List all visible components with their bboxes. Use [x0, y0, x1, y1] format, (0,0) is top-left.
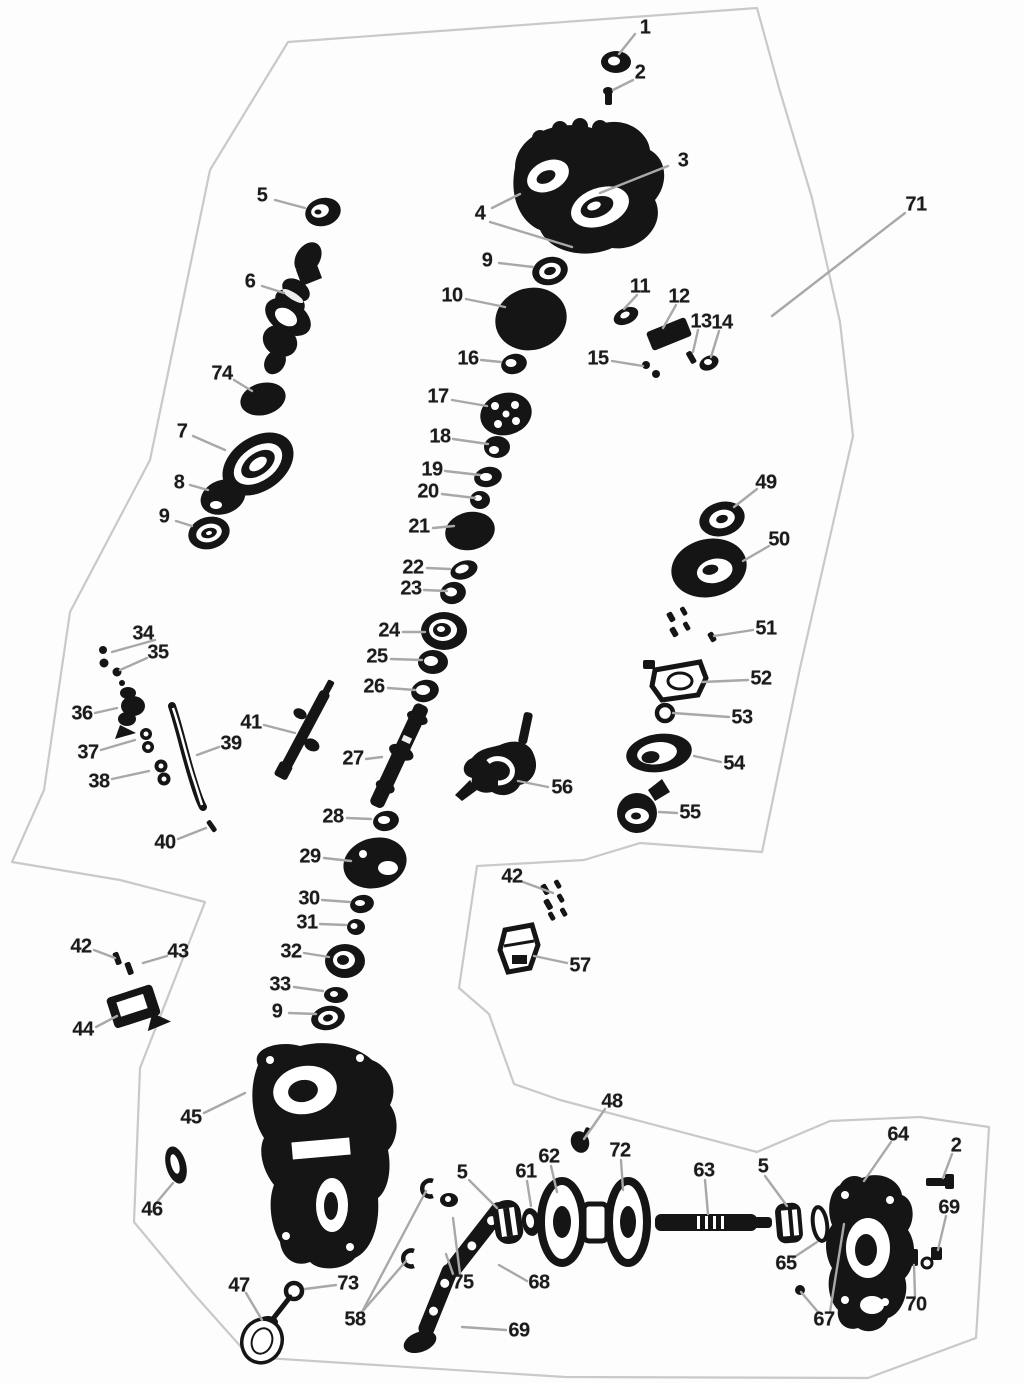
- part-13-graphic: [685, 350, 697, 364]
- callout-label-4-3: 4: [475, 203, 486, 226]
- callout-label-55-75: 55: [679, 802, 700, 825]
- callout-label-23-24: 23: [400, 578, 421, 601]
- callout-label-70-67: 70: [905, 1294, 926, 1317]
- callout-label-47-49: 47: [228, 1275, 249, 1298]
- part-33-graphic: [324, 987, 348, 1003]
- part-28-graphic: [371, 809, 401, 834]
- callout-label-35-37: 35: [147, 642, 168, 665]
- leader-line-38: [112, 771, 149, 779]
- callout-label-13-14: 13: [690, 311, 711, 334]
- leader-line-63: [705, 1180, 708, 1214]
- part-32-graphic: [325, 944, 365, 978]
- callout-label-22-23: 22: [402, 557, 423, 580]
- part-39-graphic: [172, 706, 203, 807]
- part-45-graphic: [252, 1043, 396, 1268]
- leader-line-69: [462, 1327, 506, 1330]
- leader-line-10: [466, 299, 505, 307]
- callout-label-32-33: 32: [280, 941, 301, 964]
- leader-line-41: [264, 725, 295, 733]
- part-5-bottom-left-graphic: [491, 1198, 525, 1245]
- leader-line-19: [445, 471, 480, 475]
- callout-label-9-10: 9: [482, 250, 493, 273]
- leader-line-48: [584, 1109, 605, 1139]
- leader-line-30: [322, 900, 350, 902]
- callout-label-36-38: 36: [71, 703, 92, 726]
- callout-label-1-0: 1: [640, 17, 651, 40]
- leader-line-27: [366, 757, 382, 759]
- leader-line-49: [734, 489, 757, 507]
- part-12-graphic: [646, 317, 692, 351]
- part-46-graphic: [161, 1144, 190, 1186]
- callout-label-14-15: 14: [711, 312, 732, 335]
- part-56-graphic: [455, 712, 536, 801]
- leader-line-5: [765, 1176, 787, 1206]
- leader-line-42: [94, 950, 115, 958]
- part-37-graphic: [140, 728, 154, 753]
- part-38-graphic: [155, 760, 171, 786]
- callout-label-42-77: 42: [501, 866, 522, 889]
- part-54-graphic: [624, 730, 695, 777]
- part-50-graphic: [666, 532, 752, 605]
- callout-label-52-72: 52: [750, 668, 771, 691]
- part-29-graphic: [338, 831, 413, 896]
- leader-line-52: [702, 680, 748, 682]
- part-68-graphic: [401, 1262, 460, 1357]
- part-27-graphic: [364, 700, 435, 812]
- callout-label-5-56: 5: [457, 1162, 468, 1185]
- callout-label-37-39: 37: [77, 742, 98, 765]
- callout-label-57-78: 57: [569, 955, 590, 978]
- callout-label-31-32: 31: [296, 912, 317, 935]
- leader-line-71: [772, 213, 905, 316]
- callout-label-3-2: 3: [678, 150, 689, 173]
- callout-label-71-68: 71: [905, 194, 926, 217]
- part-49-graphic: [695, 497, 748, 542]
- callout-label-17-18: 17: [427, 386, 448, 409]
- callout-label-8-8: 8: [174, 472, 185, 495]
- leader-line-61: [527, 1181, 531, 1206]
- leader-line-9: [176, 521, 192, 526]
- callout-label-54-74: 54: [723, 753, 744, 776]
- leader-line-40: [178, 828, 206, 839]
- callout-label-7-7: 7: [177, 421, 188, 444]
- leader-line-7: [193, 436, 225, 450]
- callout-label-38-40: 38: [88, 771, 109, 794]
- leader-line-31: [320, 924, 346, 925]
- leader-line-54: [694, 756, 721, 762]
- part-55-graphic: [617, 779, 670, 833]
- leader-line-14: [711, 331, 719, 357]
- callout-label-67-63: 67: [813, 1309, 834, 1332]
- part-20-graphic: [470, 491, 490, 509]
- leader-line-5: [469, 1180, 497, 1208]
- callout-label-18-19: 18: [429, 426, 450, 449]
- part-36-graphic: [115, 680, 145, 739]
- callout-label-73-50: 73: [337, 1273, 358, 1296]
- part-53-graphic: [657, 705, 673, 721]
- part-63-graphic: [655, 1214, 772, 1231]
- part-9-top-graphic: [529, 253, 571, 289]
- leader-line-37: [101, 740, 135, 750]
- part-21-graphic: [442, 507, 499, 555]
- callout-label-30-31: 30: [298, 888, 319, 911]
- leader-line-9: [289, 1013, 316, 1014]
- leader-line-32: [304, 953, 329, 957]
- leader-line-9: [499, 263, 533, 267]
- callout-label-65-62: 65: [775, 1253, 796, 1276]
- part-2-right-graphic: [926, 1174, 954, 1189]
- callout-label-39-41: 39: [220, 733, 241, 756]
- callout-label-45-47: 45: [180, 1107, 201, 1130]
- callout-label-63-60: 63: [693, 1160, 714, 1183]
- leader-line-35: [120, 658, 147, 670]
- part-70-graphic: [911, 1249, 918, 1266]
- callout-label-46-48: 46: [141, 1199, 162, 1222]
- leader-line-50: [743, 546, 769, 561]
- leader-line-36: [95, 708, 117, 713]
- callout-label-56-76: 56: [551, 777, 572, 800]
- leader-line-73: [305, 1285, 336, 1289]
- callout-label-19-20: 19: [421, 459, 442, 482]
- leader-line-69: [938, 1216, 946, 1250]
- leader-line-45: [204, 1093, 245, 1113]
- callout-label-16-17: 16: [457, 348, 478, 371]
- part-31-graphic: [347, 919, 365, 935]
- callout-label-41-43: 41: [240, 712, 261, 735]
- leader-line-22: [427, 568, 450, 569]
- callout-label-72-59: 72: [609, 1140, 630, 1163]
- leader-line-64: [864, 1142, 891, 1181]
- callout-label-25-26: 25: [366, 646, 387, 669]
- part-18-graphic: [484, 436, 510, 458]
- leader-line-39: [197, 747, 219, 755]
- callout-label-51-71: 51: [755, 618, 776, 641]
- part-52-graphic: [643, 660, 706, 700]
- part-5-bottom-right-graphic: [774, 1202, 803, 1244]
- callout-label-58-51: 58: [344, 1309, 365, 1332]
- callout-label-21-22: 21: [408, 516, 429, 539]
- leader-line-2: [613, 80, 633, 90]
- part-10-graphic: [488, 280, 574, 359]
- leader-line-20: [442, 494, 475, 498]
- leader-line-5: [275, 200, 305, 208]
- leader-line-4: [492, 194, 520, 208]
- diagram-drawing: [0, 0, 1024, 1383]
- leader-line-26: [388, 688, 415, 690]
- part-5-left-graphic: [302, 194, 344, 230]
- callout-label-28-29: 28: [322, 806, 343, 829]
- callout-label-68-53: 68: [528, 1272, 549, 1295]
- leader-lines: [94, 34, 952, 1330]
- part-40-graphic: [206, 819, 218, 833]
- leader-line-6: [262, 286, 284, 293]
- callout-label-50-70: 50: [768, 529, 789, 552]
- part-51-graphic: [666, 606, 717, 643]
- callout-label-69-66: 69: [938, 1197, 959, 1220]
- part-65-graphic: [811, 1206, 830, 1242]
- part-16-graphic: [499, 351, 529, 377]
- part-72-graphic: [584, 1181, 647, 1263]
- callout-label-62-58: 62: [538, 1146, 559, 1169]
- callout-label-5-61: 5: [758, 1156, 769, 1179]
- part-3-graphic: [513, 118, 664, 254]
- part-42-left-graphic: [112, 951, 134, 975]
- callout-label-53-73: 53: [731, 707, 752, 730]
- part-23-graphic: [438, 579, 469, 607]
- leader-line-74: [234, 380, 252, 391]
- callout-label-9-9: 9: [159, 506, 170, 529]
- leader-line-57: [534, 956, 567, 963]
- callout-label-42-44: 42: [70, 936, 91, 959]
- leader-line-33: [294, 987, 323, 991]
- part-62-graphic: [541, 1181, 583, 1263]
- leader-line-25: [391, 659, 422, 660]
- leader-line-70: [914, 1265, 915, 1296]
- leader-line-17: [452, 400, 487, 406]
- part-6-graphic: [257, 237, 327, 378]
- part-34-graphic: [99, 646, 109, 668]
- diagram-boundary-outline: [12, 8, 989, 1378]
- leader-line-51: [714, 630, 753, 636]
- callout-label-15-16: 15: [587, 348, 608, 371]
- callout-label-11-12: 11: [630, 276, 650, 299]
- callout-label-29-30: 29: [299, 846, 320, 869]
- part-24-graphic: [421, 612, 467, 650]
- part-42-right-graphic: [540, 879, 568, 921]
- part-17-graphic: [475, 387, 536, 441]
- leader-line-28: [347, 818, 371, 819]
- parts-diagram-canvas: 1234567478991011121314151617181920212223…: [0, 0, 1024, 1383]
- leader-line-68: [499, 1265, 527, 1281]
- part-19-graphic: [472, 464, 504, 489]
- leader-line-55: [659, 812, 677, 813]
- callout-label-2-1: 2: [635, 62, 646, 85]
- leader-line-42: [523, 882, 553, 893]
- part-74-graphic: [237, 378, 290, 421]
- part-9-mid-graphic: [309, 1003, 347, 1034]
- callout-label-12-13: 12: [668, 286, 689, 309]
- callout-label-2-65: 2: [951, 1135, 962, 1158]
- callout-label-43-45: 43: [167, 941, 188, 964]
- leader-line-18: [453, 439, 488, 444]
- callout-label-69-54: 69: [508, 1320, 529, 1343]
- callout-label-33-34: 33: [269, 974, 290, 997]
- part-25-graphic: [418, 650, 448, 674]
- callout-label-5-4: 5: [257, 185, 268, 208]
- callout-label-10-11: 10: [441, 285, 462, 308]
- callout-label-48-55: 48: [601, 1091, 622, 1114]
- part-1-graphic: [601, 51, 631, 73]
- leader-line-16: [481, 360, 501, 362]
- callout-label-6-5: 6: [245, 271, 256, 294]
- leader-line-15: [612, 361, 643, 366]
- callout-label-49-69: 49: [755, 472, 776, 495]
- callout-label-74-6: 74: [211, 363, 232, 386]
- callout-label-9-35: 9: [272, 1001, 283, 1024]
- callout-label-24-25: 24: [378, 620, 399, 643]
- callout-label-64-64: 64: [887, 1124, 908, 1147]
- leader-line-1: [619, 34, 635, 54]
- callout-label-26-27: 26: [363, 676, 384, 699]
- callout-label-40-42: 40: [154, 832, 175, 855]
- callout-label-44-46: 44: [72, 1019, 93, 1042]
- leader-line-53: [673, 713, 729, 717]
- callout-label-20-21: 20: [417, 481, 438, 504]
- leader-line-43: [143, 956, 167, 963]
- callout-label-27-28: 27: [342, 748, 363, 771]
- leader-line-8: [190, 485, 208, 490]
- part-47-graphic: [236, 1297, 290, 1369]
- part-9-left-graphic: [185, 512, 234, 554]
- leader-line-23: [424, 590, 447, 591]
- callout-label-61-57: 61: [515, 1161, 536, 1184]
- part-57-graphic: [500, 925, 538, 972]
- part-2-graphic: [603, 87, 613, 105]
- part-15-graphic: [642, 361, 660, 378]
- part-30-graphic: [348, 893, 375, 916]
- part-22-graphic: [448, 557, 480, 583]
- callout-label-75-52: 75: [452, 1272, 473, 1295]
- part-41-graphic: [263, 672, 350, 788]
- part-14-graphic: [697, 352, 721, 373]
